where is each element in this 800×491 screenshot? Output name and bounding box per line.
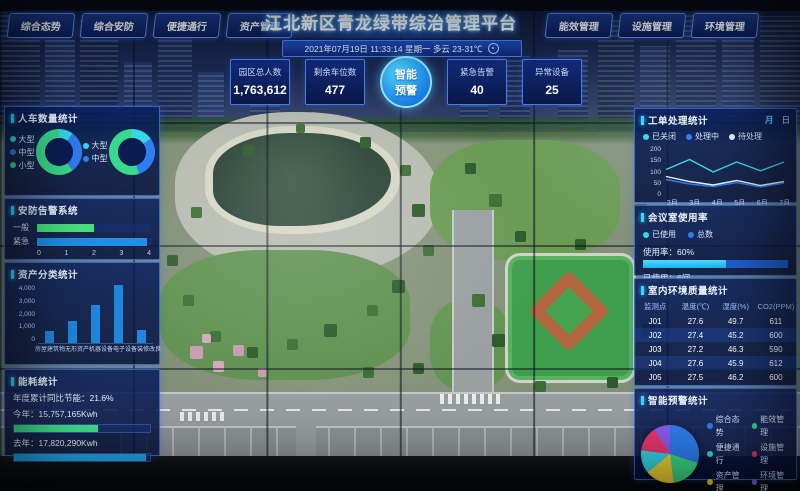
table-cell: J03 <box>635 342 675 356</box>
legend-label: 便捷通行 <box>716 441 746 467</box>
legend-label: 大型 <box>19 133 35 146</box>
title-accent <box>641 286 644 295</box>
energy-summary: 年度累计同比节能：21.6% <box>5 390 159 406</box>
nav-item[interactable]: 便捷通行 <box>153 13 222 38</box>
table-cell: 611 <box>756 314 796 328</box>
workorder-legend: 已关闭处理中待处理 <box>635 129 796 144</box>
panel-meeting-usage: 会议室使用率 已使用总数 使用率：60% 已使用：6间 <box>634 205 797 276</box>
dashboard-screen: 综合态势综合安防便捷通行资产管理 江北新区青龙绿带综治管理平台 能效管理设施管理… <box>0 0 800 491</box>
lawn <box>160 250 410 380</box>
legend-item: 能效管理 <box>752 413 791 439</box>
legend-item: 总数 <box>688 228 713 241</box>
legend-item: 设施管理 <box>752 441 791 467</box>
table-header: 温度(℃) <box>675 299 715 314</box>
axis-tick: 150 <box>650 157 661 164</box>
legend-label: 中型 <box>92 152 108 165</box>
stat-park-population: 园区总人数1,763,612 <box>230 59 290 105</box>
legend-dot <box>707 423 713 429</box>
axis-tick: 200 <box>650 146 661 153</box>
table-header: CO2(PPM) <box>756 299 796 314</box>
bar-label: 紧急 <box>13 236 33 247</box>
donut2-legend: 大型中型 <box>83 139 108 165</box>
title-accent <box>11 206 14 215</box>
legend-item: 已使用 <box>643 228 676 241</box>
axis-tick: 1 <box>65 250 69 257</box>
energy-last-year-bar <box>14 454 146 461</box>
table-row: J0327.246.3590 <box>635 342 796 356</box>
donut1-legend: 大型中型小型 <box>10 133 35 172</box>
stat-parking-remaining: 剩余车位数477 <box>305 59 365 105</box>
axis-tick: 4,000 <box>19 285 35 292</box>
axis-tick: 机器设备 <box>89 344 113 353</box>
legend-item: 资产管理 <box>707 469 746 491</box>
table-cell: 27.6 <box>675 314 715 328</box>
nav-item[interactable]: 环境管理 <box>691 13 760 38</box>
legend-item: 综合态势 <box>707 413 746 439</box>
smart-alert-badge[interactable]: 智能预警 <box>380 56 432 108</box>
road-vertical <box>452 210 494 394</box>
bar-fill <box>37 238 147 246</box>
table-cell: 600 <box>756 328 796 342</box>
alert-legend: 综合态势能效管理便捷通行设施管理资产管理环境管理 <box>707 413 790 491</box>
left-menu: 综合态势综合安防便捷通行资产管理 <box>8 13 293 38</box>
legend-item: 待处理 <box>729 130 762 143</box>
title-accent <box>11 377 14 386</box>
energy-this-year-label: 今年：15,757,165Kwh <box>5 406 159 422</box>
title-accent <box>641 116 644 125</box>
panel-workorder-stats: 工单处理统计 月日 已关闭处理中待处理 200150100500 2月3月4月5… <box>634 108 797 203</box>
axis-tick: 100 <box>650 169 661 176</box>
asset-bars <box>38 285 153 344</box>
legend-dot <box>729 134 735 140</box>
legend-dot <box>643 232 649 238</box>
legend-item: 大型 <box>83 139 108 152</box>
legend-item: 便捷通行 <box>707 441 746 467</box>
energy-this-year-bar <box>14 425 98 432</box>
bar-label: 一般 <box>13 222 33 233</box>
table-cell: 27.6 <box>675 356 715 370</box>
energy-last-year-label: 去年：17,820,290Kwh <box>5 435 159 451</box>
axis-tick: 3 <box>120 250 124 257</box>
table-cell: J04 <box>635 356 675 370</box>
legend-dot <box>83 143 89 149</box>
table-cell: 612 <box>756 356 796 370</box>
title-accent <box>641 396 644 405</box>
asset-bar <box>45 331 54 343</box>
axis-tick: 电子设备 <box>113 344 137 353</box>
asset-bar <box>137 330 146 343</box>
axis-tick: 50 <box>654 180 661 187</box>
legend-item: 中型 <box>10 146 35 159</box>
stats-row: 园区总人数1,763,612 剩余车位数477 智能预警 紧急告警40 异常设备… <box>230 56 582 108</box>
legend-label: 环境管理 <box>760 469 790 491</box>
legend-label: 已关闭 <box>652 130 676 143</box>
crosswalk <box>440 394 500 404</box>
panel-title: 会议室使用率 <box>648 210 708 224</box>
legend-dot <box>10 162 16 168</box>
legend-dot <box>752 423 758 429</box>
panel-title: 室内环境质量统计 <box>648 283 728 297</box>
baseball-diamond <box>528 270 610 352</box>
axis-tick: 2,000 <box>19 311 35 318</box>
asset-y-axis: 4,0003,0002,0001,0000 <box>9 285 38 343</box>
table-header: 监测点 <box>635 299 675 314</box>
axis-tick: 1,000 <box>19 323 35 330</box>
table-row: J0527.546.2600 <box>635 370 796 384</box>
axis-tick: 0 <box>37 250 41 257</box>
legend-item: 大型 <box>10 133 35 146</box>
table-cell: 45.9 <box>716 356 756 370</box>
table-cell: 27.4 <box>675 328 715 342</box>
datetime-bar: 2021年07月19日 11:33:14 星期一 多云 23-31℃ <box>282 40 522 57</box>
asset-bar <box>114 285 123 343</box>
bar-track <box>37 224 151 232</box>
table-cell: 45.2 <box>716 328 756 342</box>
legend-dot <box>752 479 758 485</box>
legend-item: 已关闭 <box>643 130 676 143</box>
alert-pie-chart <box>641 425 699 483</box>
axis-tick: 3,000 <box>19 298 35 305</box>
datetime-text: 2021年07月19日 11:33:14 星期一 多云 23-31℃ <box>305 43 483 55</box>
legend-label: 总数 <box>697 228 713 241</box>
table-row: J0427.645.9612 <box>635 356 796 370</box>
axis-tick: 无形资产 <box>65 344 89 353</box>
vehicle-donut-2 <box>109 129 155 175</box>
legend-item: 中型 <box>83 152 108 165</box>
table-cell: 46.3 <box>716 342 756 356</box>
axis-tick: 2 <box>92 250 96 257</box>
panel-title: 智能预警统计 <box>648 393 708 407</box>
axis-tick: 4 <box>147 250 151 257</box>
meeting-usage-bar <box>643 260 726 268</box>
legend-label: 资产管理 <box>716 469 746 491</box>
axis-tick: 房屋建筑物 <box>35 344 65 353</box>
legend-dot <box>10 149 16 155</box>
title-accent <box>11 270 14 279</box>
table-cell: 49.7 <box>716 314 756 328</box>
asset-bar <box>68 321 77 343</box>
meeting-legend: 已使用总数 <box>635 226 796 243</box>
table-cell: 600 <box>756 370 796 384</box>
table-cell: 27.2 <box>675 342 715 356</box>
table-cell: J02 <box>635 328 675 342</box>
workorder-y-axis: 200150100500 <box>641 146 664 198</box>
legend-dot <box>10 136 16 142</box>
legend-dot <box>83 156 89 162</box>
legend-label: 待处理 <box>738 130 762 143</box>
table-cell: J05 <box>635 370 675 384</box>
panel-vehicle-stats: 人车数量统计 大型中型小型 大型中型 <box>4 106 160 196</box>
legend-item: 处理中 <box>686 130 719 143</box>
legend-dot <box>688 232 694 238</box>
legend-dot <box>707 451 713 457</box>
table-cell: 27.5 <box>675 370 715 384</box>
legend-dot <box>707 479 713 485</box>
axis-tick: 0 <box>31 336 35 343</box>
crosswalk <box>180 412 226 421</box>
workorder-tabs: 月日 <box>765 114 790 126</box>
bar-fill <box>37 224 94 232</box>
meeting-rate-label: 使用率：60% <box>635 243 796 259</box>
vehicle-donut-1 <box>36 129 82 175</box>
panel-asset-stats: 资产分类统计 4,0003,0002,0001,0000 房屋建筑物无形资产机器… <box>4 262 160 365</box>
panel-title: 工单处理统计 <box>648 113 708 127</box>
asset-x-labels: 房屋建筑物无形资产机器设备电子设备装修改良 <box>5 344 159 353</box>
security-bar-row: 一般 <box>5 219 159 233</box>
nav-item[interactable]: 综合态势 <box>7 13 76 38</box>
asset-bar <box>91 305 100 343</box>
legend-label: 中型 <box>19 146 35 159</box>
table-cell: 590 <box>756 342 796 356</box>
legend-label: 能效管理 <box>760 413 790 439</box>
security-bar-row: 紧急 <box>5 233 159 247</box>
legend-label: 小型 <box>19 159 35 172</box>
security-x-axis: 01234 <box>5 247 159 257</box>
table-cell: J01 <box>635 314 675 328</box>
panel-title: 安防告警系统 <box>18 203 78 217</box>
panel-alert-stats: 智能预警统计 综合态势能效管理便捷通行设施管理资产管理环境管理 <box>634 388 797 480</box>
nav-item[interactable]: 综合安防 <box>80 13 149 38</box>
legend-dot <box>686 134 692 140</box>
title-accent <box>11 114 14 123</box>
stat-abnormal-devices: 异常设备25 <box>522 59 582 105</box>
legend-label: 已使用 <box>652 228 676 241</box>
environment-table: 监测点温度(℃)湿度(%)CO2(PPM) J0127.649.7611J022… <box>635 299 796 384</box>
panel-energy-stats: 能耗统计 年度累计同比节能：21.6% 今年：15,757,165Kwh 去年：… <box>4 369 160 456</box>
legend-label: 综合态势 <box>716 413 746 439</box>
panel-security-alarms: 安防告警系统 一般紧急 01234 <box>4 198 160 260</box>
legend-item: 环境管理 <box>752 469 791 491</box>
nav-item[interactable]: 能效管理 <box>545 13 614 38</box>
bar-track <box>37 238 151 246</box>
panel-title: 人车数量统计 <box>18 111 78 125</box>
legend-label: 设施管理 <box>760 441 790 467</box>
stat-emergency-alarms: 紧急告警40 <box>447 59 507 105</box>
panel-title: 资产分类统计 <box>18 267 78 281</box>
title-accent <box>641 213 644 222</box>
panel-title: 能耗统计 <box>18 374 58 388</box>
legend-label: 大型 <box>92 139 108 152</box>
table-row: J0227.445.2600 <box>635 328 796 342</box>
legend-dot <box>643 134 649 140</box>
tab-日[interactable]: 日 <box>781 114 790 126</box>
table-row: J0127.649.7611 <box>635 314 796 328</box>
panel-environment-quality: 室内环境质量统计 监测点温度(℃)湿度(%)CO2(PPM) J0127.649… <box>634 278 797 386</box>
tab-月[interactable]: 月 <box>765 114 774 126</box>
legend-label: 处理中 <box>695 130 719 143</box>
table-cell: 46.2 <box>716 370 756 384</box>
right-menu: 能效管理设施管理环境管理 <box>546 13 758 38</box>
workorder-line-chart <box>664 146 786 198</box>
legend-dot <box>752 451 758 457</box>
nav-item[interactable]: 设施管理 <box>618 13 687 38</box>
sports-field <box>508 256 633 380</box>
table-header: 湿度(%) <box>716 299 756 314</box>
info-icon[interactable] <box>488 43 499 54</box>
axis-tick: 0 <box>657 191 661 198</box>
page-title: 江北新区青龙绿带综治管理平台 <box>262 10 520 38</box>
legend-item: 小型 <box>10 159 35 172</box>
axis-tick: 装修改良 <box>137 344 161 353</box>
